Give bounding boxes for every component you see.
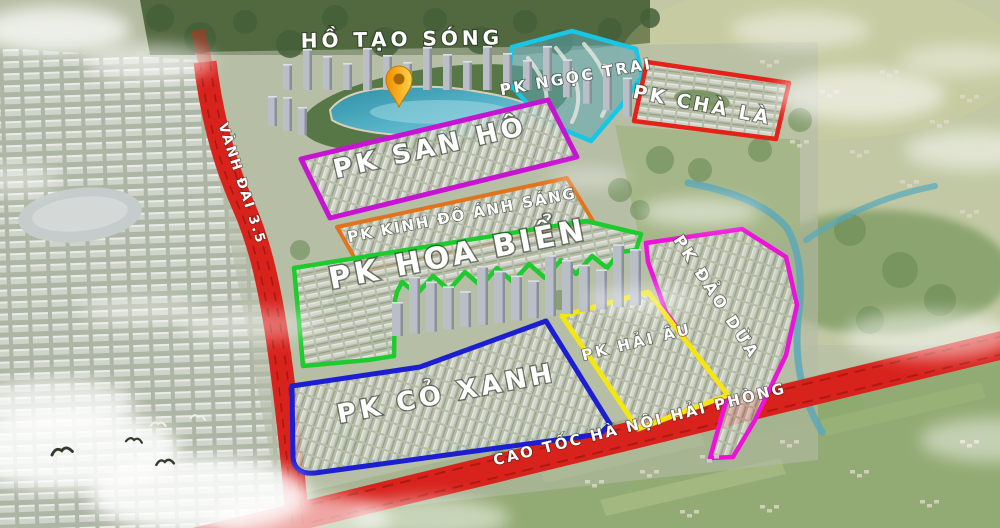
tower-roof [503,53,512,55]
tower-roof [563,59,572,61]
village-building [694,510,699,514]
tower-shade [310,49,313,90]
village-building [804,140,809,144]
tower-shade [290,64,293,90]
cloud [80,296,200,324]
tower-shade [490,46,493,90]
village-building [864,150,869,154]
tower-roof [579,265,590,267]
tower-shade [470,61,473,90]
tower-shade [503,271,506,323]
tower-roof [543,46,552,48]
tree [640,8,660,28]
tower-shade [520,276,523,321]
village-building [647,474,652,478]
tower-roof [443,286,454,288]
village-building [974,95,979,99]
tower-shade [469,291,472,327]
village-building [774,505,779,509]
village-building [700,455,705,459]
tower-shade [401,302,404,336]
village-building [960,95,965,99]
village-building [960,210,965,214]
tower-shade [486,266,489,325]
village-building [790,140,795,144]
tower-roof [494,271,505,273]
village-building [850,150,855,154]
tower-roof [268,96,277,98]
village-building [760,60,765,64]
village-building [944,120,949,124]
tower-shade [537,280,540,318]
village-building [900,180,905,184]
tower-roof [343,63,352,65]
village-building [920,500,925,504]
village-building [787,444,792,448]
cloud [550,168,630,188]
village-building [794,440,799,444]
tower-roof [545,255,556,257]
tree [146,4,174,32]
village-building [767,64,772,68]
village-building [780,440,785,444]
tower-shade [435,282,438,332]
tower-shade [370,48,373,90]
village-building [592,484,597,488]
tower-shade [452,286,455,329]
tower-roof [613,244,624,246]
cloud [85,44,215,80]
lake-label: HỒ TẠO SÓNG [300,23,503,53]
village-building [797,144,802,148]
village-building [585,480,590,484]
tower-roof [403,62,412,64]
tower-shade [290,97,293,131]
village-building [930,120,935,124]
tower-shade [418,277,421,334]
village-building [967,99,972,103]
tower-shade [305,107,308,135]
tower-shade [330,56,333,90]
village-building [857,154,862,158]
tower-roof [323,56,332,58]
tower-shade [350,63,353,90]
tree [233,10,257,34]
tower-shade [275,96,278,126]
tower-roof [426,282,437,284]
village-building [707,459,712,463]
tower-roof [383,55,392,57]
tower-shade [450,54,453,90]
village-building [767,509,772,513]
tower-roof [443,54,452,56]
cloud [585,287,695,313]
village-building [937,124,942,128]
village-building [599,480,604,484]
tower-roof [528,280,539,282]
tower-shade [554,255,557,316]
village-building [680,510,685,514]
cloud [180,309,320,341]
tower-roof [596,269,607,271]
tower-roof [298,107,307,109]
village-building [760,505,765,509]
tree [290,240,310,260]
cloud [775,69,945,121]
village-building [907,184,912,188]
village-building [654,470,659,474]
village-building [974,210,979,214]
village-building [640,470,645,474]
tower-roof [460,291,471,293]
tower-roof [283,97,292,99]
village-building [850,470,855,474]
tower-roof [283,64,292,66]
tower-roof [630,249,641,251]
tree [688,158,712,182]
village-building [864,470,869,474]
tower-roof [623,78,632,80]
cloud [640,198,760,226]
tower-shade [430,47,433,90]
tower-roof [523,60,532,62]
tree [513,10,537,34]
tree [748,138,772,162]
village-building [914,180,919,184]
cloud [730,12,870,48]
masterplan-map: HỒ TẠO SÓNG PK NGỌC TRAI PK CHÀ LÀ PK SA… [0,0,1000,528]
tower-roof [511,276,522,278]
tower-roof [562,260,573,262]
village-building [967,214,972,218]
village-building [927,504,932,508]
tower-roof [392,302,403,304]
tree [882,252,918,288]
tower-roof [463,61,472,63]
tree [646,146,674,174]
village-building [857,474,862,478]
location-pin-hole [394,74,405,85]
village-building [774,60,779,64]
village-building [687,514,692,518]
village-building [934,500,939,504]
tower-shade [571,260,574,314]
masterplan-image: HỒ TẠO SÓNG PK NGỌC TRAI PK CHÀ LÀ PK SA… [0,0,1000,528]
village-building [714,455,719,459]
